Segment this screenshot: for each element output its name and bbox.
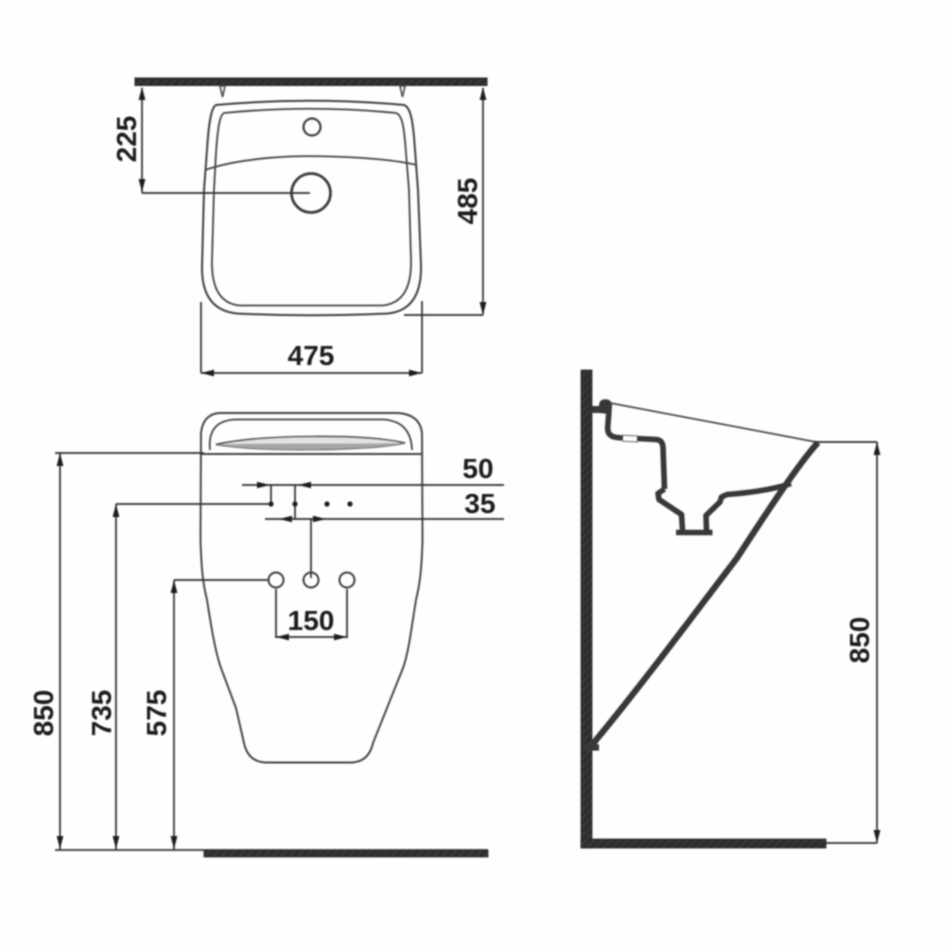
svg-text:850: 850 [844,617,875,664]
svg-text:735: 735 [86,690,117,737]
svg-text:850: 850 [28,690,59,737]
svg-text:575: 575 [141,690,172,737]
svg-text:35: 35 [464,488,495,519]
svg-text:475: 475 [288,340,335,371]
svg-text:150: 150 [288,605,335,636]
svg-text:225: 225 [111,116,142,163]
svg-text:50: 50 [462,453,493,484]
svg-text:485: 485 [452,178,483,225]
